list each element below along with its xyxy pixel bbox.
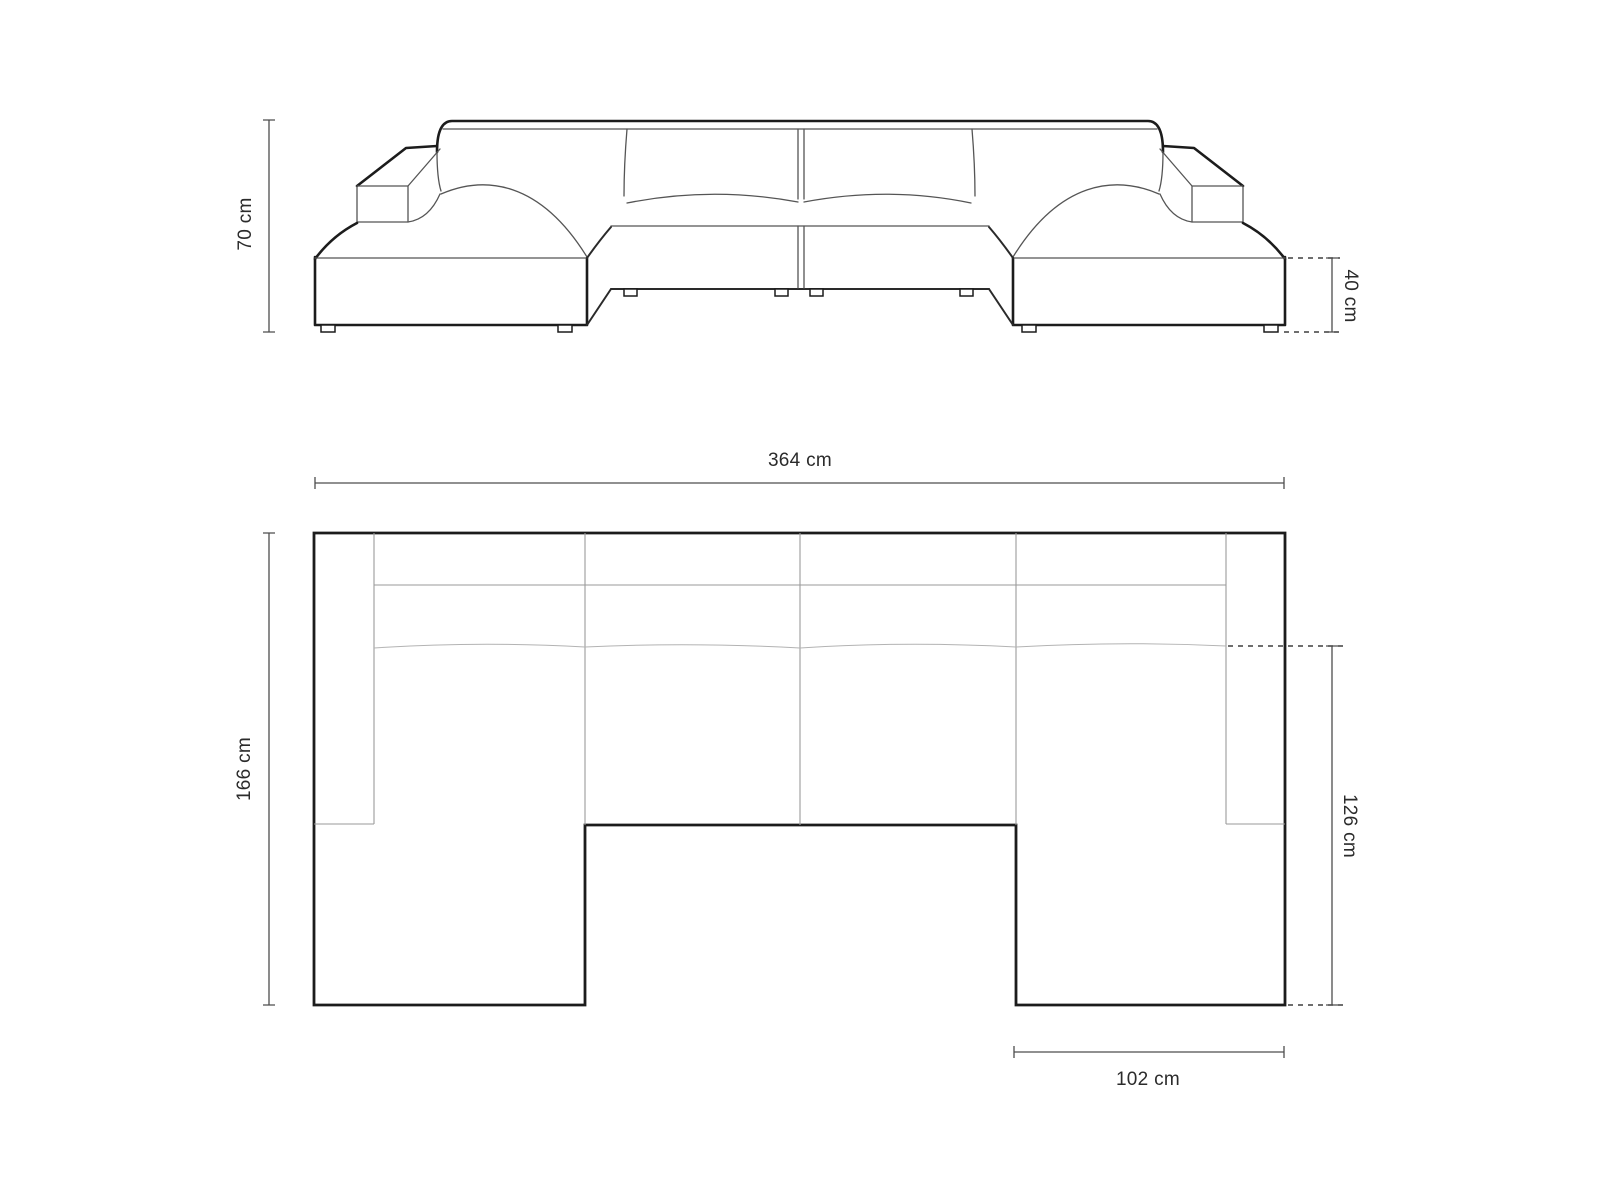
dimension-70cm (263, 120, 275, 332)
plan-seat-dividers (585, 533, 1016, 825)
backrest-right-edge (1159, 152, 1163, 191)
plan-depth-label: 166 cm (234, 737, 256, 801)
right-chaise-front-face-outline (1013, 257, 1285, 325)
left-arm-front-face (357, 186, 408, 222)
dimension-364cm (315, 477, 1284, 489)
right-arm-deck-curve (1160, 194, 1192, 222)
dimension-166cm (263, 533, 275, 1005)
left-chaise-corner-curve (315, 223, 357, 259)
middle-foot-1 (624, 289, 637, 296)
left-arm-receding-edge (408, 149, 440, 186)
technical-drawing (0, 0, 1600, 1200)
backrest-top-edge (437, 121, 1163, 152)
middle-foot-4 (960, 289, 973, 296)
dimension-102cm (1014, 1046, 1284, 1058)
right-chaise-foot-right (1264, 325, 1278, 332)
right-chaise-seat-junction (989, 227, 1013, 258)
right-chaise-foot-left (1022, 325, 1036, 332)
right-arm-receding-edge (1160, 149, 1192, 186)
middle-foot-3 (810, 289, 823, 296)
right-arm-front-face (1192, 186, 1243, 222)
front-elevation-drawing (263, 120, 1340, 332)
backrest-left-edge (437, 152, 441, 191)
left-chaise-base-junction (587, 289, 611, 325)
backrest-cushion-dividers (624, 129, 975, 199)
elevation-height-label: 70 cm (235, 197, 257, 250)
middle-cushion-top-arcs (627, 194, 971, 203)
plan-width-label: 364 cm (768, 450, 832, 472)
left-chaise-cushion-dome (441, 185, 587, 257)
right-chaise-cushion-dome (1013, 185, 1159, 257)
right-chaise-base-junction (989, 289, 1013, 325)
sofa-dimension-diagram: 70 cm 40 cm 364 cm 166 cm 126 cm 102 cm (0, 0, 1600, 1200)
plan-chaise-depth-label: 126 cm (1338, 794, 1360, 858)
left-chaise-foot-right (558, 325, 572, 332)
top-plan-drawing (263, 477, 1344, 1058)
left-arm-deck-curve (408, 194, 440, 222)
elevation-seat-height-label: 40 cm (1339, 269, 1361, 322)
left-chaise-seat-junction (587, 227, 611, 258)
middle-foot-2 (775, 289, 788, 296)
left-chaise-front-face-outline (315, 257, 587, 325)
right-chaise-corner-curve (1243, 223, 1285, 259)
dimension-40cm (1284, 258, 1340, 332)
middle-module-divider (798, 226, 804, 288)
plan-chaise-width-label: 102 cm (1116, 1069, 1180, 1091)
left-chaise-foot-left (321, 325, 335, 332)
